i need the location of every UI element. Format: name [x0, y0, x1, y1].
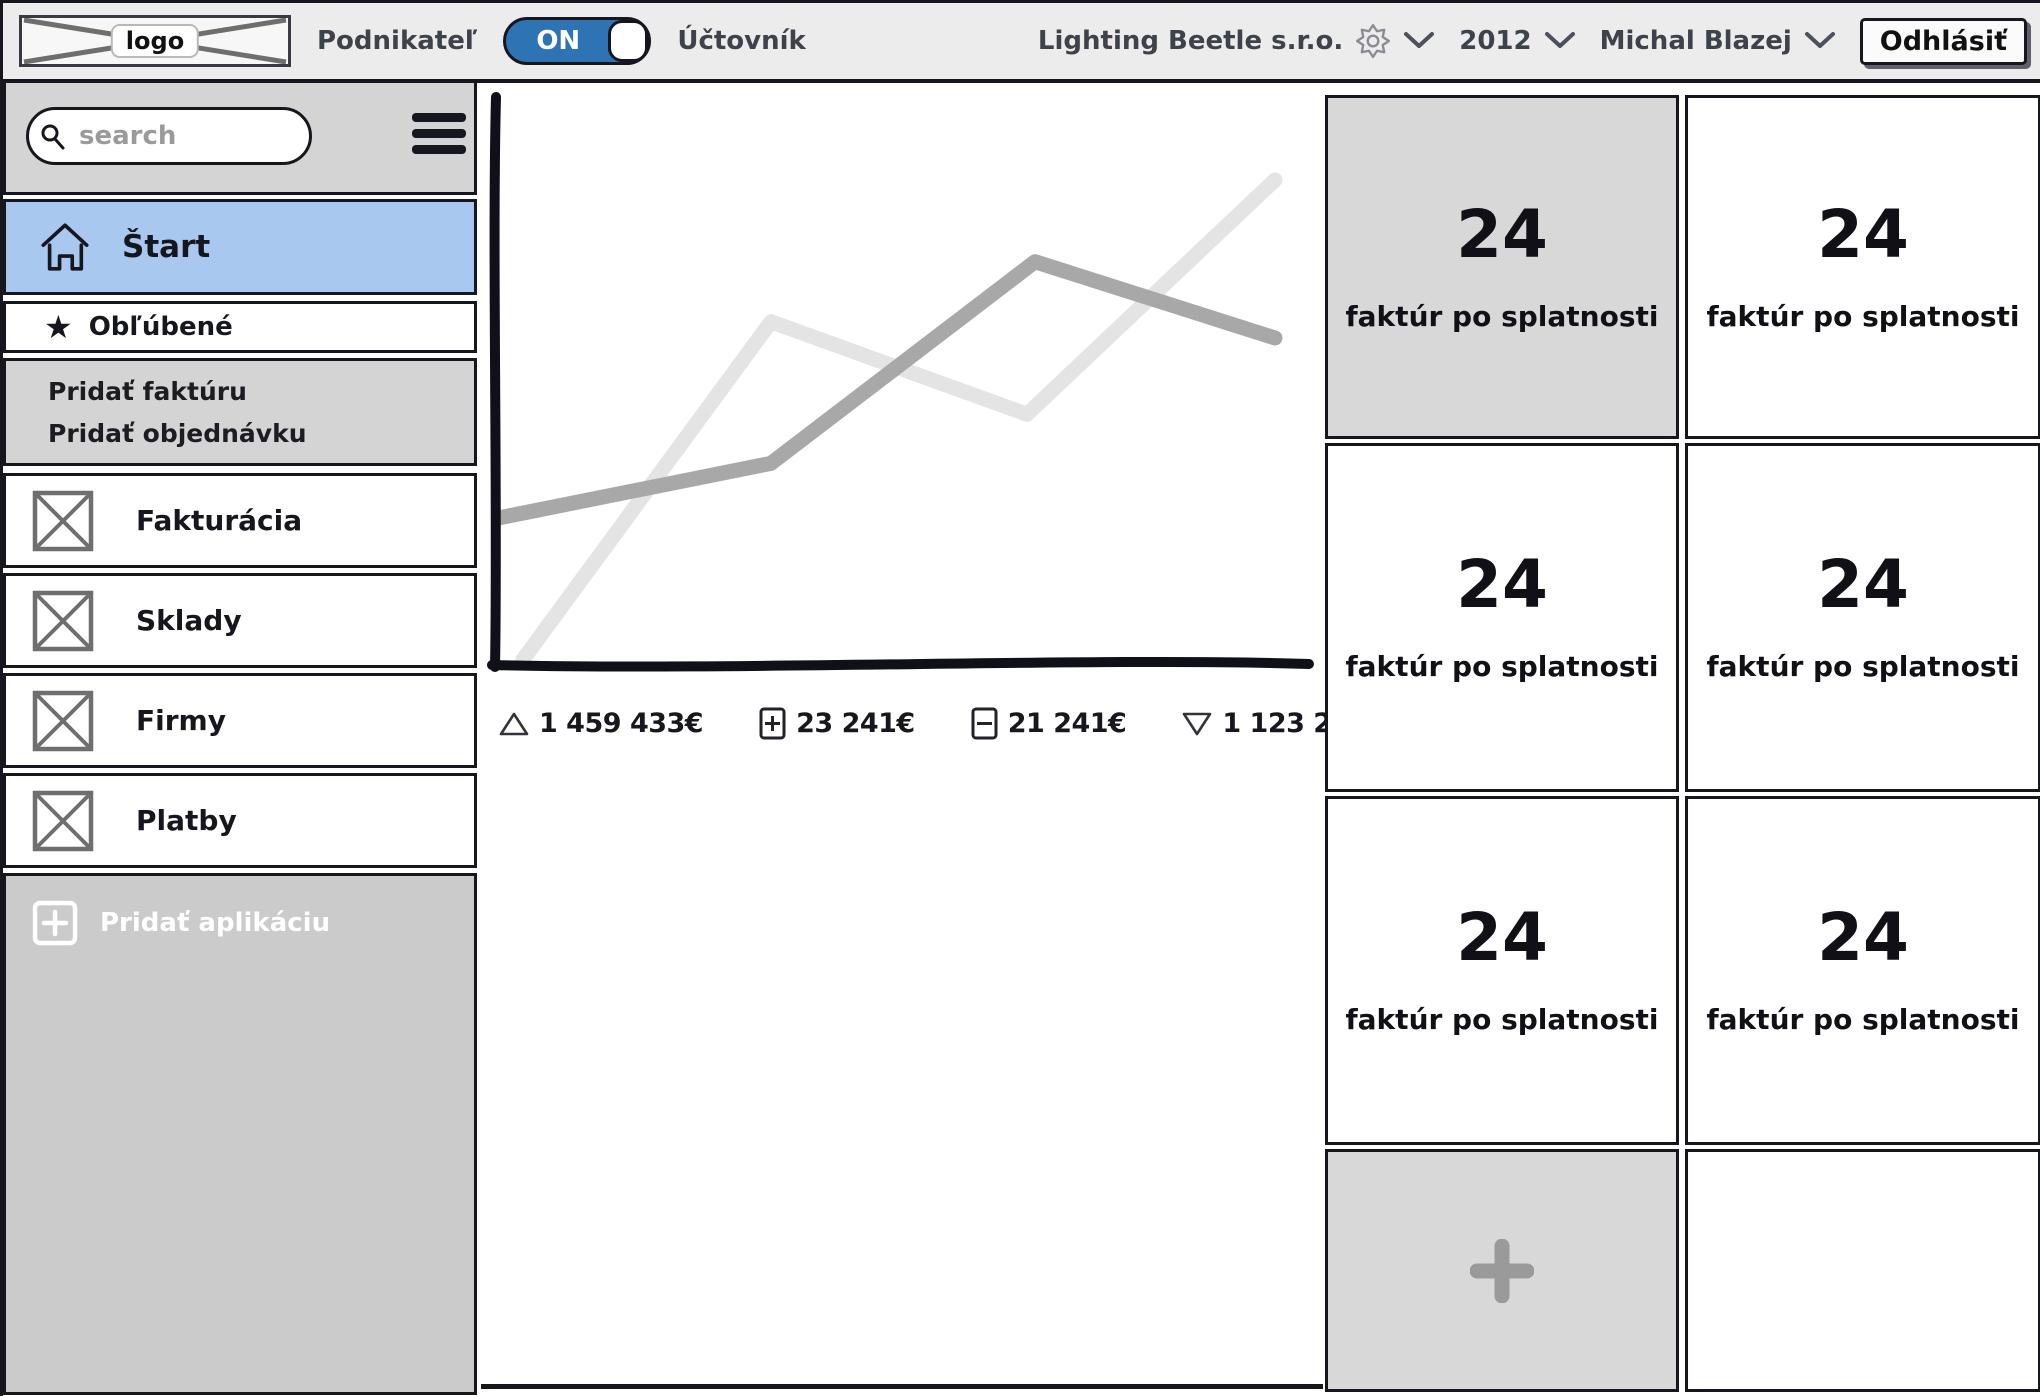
company-selector[interactable]: Lighting Beetle s.r.o.: [1038, 23, 1435, 59]
summary-card[interactable]: 24 faktúr po splatnosti: [1685, 796, 2040, 1145]
gear-icon[interactable]: [1355, 23, 1391, 59]
summary-card[interactable]: 24 faktúr po splatnosti: [1325, 796, 1679, 1145]
sidebar-item-label: Sklady: [136, 604, 242, 637]
sidebar-search-section: [3, 83, 477, 195]
hamburger-menu-icon[interactable]: [412, 113, 466, 161]
x-axis: [492, 662, 1309, 667]
legend-value: 23 241€: [796, 708, 915, 739]
image-placeholder-icon: [32, 790, 94, 852]
legend-item: 21 241€: [971, 707, 1127, 740]
summary-card[interactable]: 24 faktúr po splatnosti: [1325, 95, 1679, 439]
role-right-label: Účtovník: [677, 26, 805, 56]
star-icon: ★: [44, 311, 73, 343]
plus-box-icon: [759, 707, 786, 740]
triangle-down-icon: [1182, 711, 1212, 737]
image-placeholder-icon: [32, 690, 94, 752]
sidebar-item-invoicing[interactable]: Fakturácia: [3, 473, 477, 568]
chart-legend: 1 459 433€ 23 241€ 21 241€: [499, 707, 1386, 740]
card-label: faktúr po splatnosti: [1706, 1003, 2019, 1036]
topbar: logo Podnikateľ ON Účtovník Lighting Bee…: [3, 3, 2040, 83]
logo-text: logo: [111, 24, 199, 58]
user-selector[interactable]: Michal Blazej: [1600, 26, 1836, 56]
chart-panel: 1 459 433€ 23 241€ 21 241€: [481, 87, 1323, 1389]
card-label: faktúr po splatnosti: [1706, 650, 2019, 683]
sidebar-item-label: Obľúbené: [89, 312, 233, 342]
legend-value: 1 459 433€: [539, 708, 703, 739]
plus-box-icon: [32, 900, 78, 946]
topbar-right: Lighting Beetle s.r.o. 2012 Mich: [1038, 18, 2027, 65]
sidebar-item-companies[interactable]: Firmy: [3, 673, 477, 768]
legend-value: 21 241€: [1008, 708, 1127, 739]
sidebar-item-label: Platby: [136, 804, 237, 837]
sidebar: Štart ★ Obľúbené Pridať faktúru Pridať o…: [3, 83, 477, 1395]
card-value: 24: [1456, 552, 1548, 618]
card-label: faktúr po splatnosti: [1345, 300, 1658, 333]
role-left-label: Podnikateľ: [317, 26, 477, 56]
add-application-label: Pridať aplikáciu: [100, 908, 330, 938]
sidebar-item-payments[interactable]: Platby: [3, 773, 477, 868]
sidebar-item-label: Firmy: [136, 704, 226, 737]
add-card-plus-icon: [1470, 1239, 1534, 1303]
chevron-down-icon[interactable]: [1544, 31, 1576, 51]
sidebar-item-favorites[interactable]: ★ Obľúbené: [3, 301, 477, 353]
card-value: 24: [1456, 202, 1548, 268]
search-input[interactable]: [26, 107, 312, 165]
sidebar-item-label: Fakturácia: [136, 504, 302, 537]
toggle-on-label: ON: [536, 26, 580, 56]
role-toggle[interactable]: ON: [503, 17, 651, 65]
y-axis: [495, 97, 496, 667]
sidebar-item-warehouses[interactable]: Sklady: [3, 573, 477, 668]
logo-image-placeholder: logo: [19, 15, 291, 67]
line-chart: [483, 89, 1317, 689]
year-value: 2012: [1459, 26, 1531, 56]
triangle-up-icon: [499, 711, 529, 737]
card-label: faktúr po splatnosti: [1345, 650, 1658, 683]
legend-item: 1 459 433€: [499, 708, 703, 739]
logout-button[interactable]: Odhlásiť: [1860, 18, 2027, 65]
wireframe-dashboard: logo Podnikateľ ON Účtovník Lighting Bee…: [0, 0, 2040, 1396]
summary-card[interactable]: 24 faktúr po splatnosti: [1325, 443, 1679, 792]
quick-action-add-invoice[interactable]: Pridať faktúru: [48, 377, 247, 406]
card-value: 24: [1817, 905, 1909, 971]
company-name: Lighting Beetle s.r.o.: [1038, 26, 1343, 56]
user-name: Michal Blazej: [1600, 26, 1792, 56]
summary-card[interactable]: 24 faktúr po splatnosti: [1685, 443, 2040, 792]
summary-cards-grid: 24 faktúr po splatnosti 24 faktúr po spl…: [1325, 95, 2040, 1392]
sidebar-item-label: Štart: [122, 229, 210, 265]
summary-card[interactable]: 24 faktúr po splatnosti: [1685, 95, 2040, 439]
card-label: faktúr po splatnosti: [1345, 1003, 1658, 1036]
home-icon: [36, 218, 94, 276]
add-application-section: Pridať aplikáciu: [3, 873, 477, 1395]
add-application-button[interactable]: Pridať aplikáciu: [32, 900, 330, 946]
chevron-down-icon[interactable]: [1403, 31, 1435, 51]
card-value: 24: [1817, 552, 1909, 618]
toggle-knob[interactable]: [608, 20, 648, 62]
quick-actions-section: Pridať faktúru Pridať objednávku: [3, 358, 477, 466]
card-value: 24: [1817, 202, 1909, 268]
year-selector[interactable]: 2012: [1459, 26, 1575, 56]
image-placeholder-icon: [32, 490, 94, 552]
chevron-down-icon[interactable]: [1804, 31, 1836, 51]
empty-card-slot: [1685, 1149, 2040, 1392]
card-label: faktúr po splatnosti: [1706, 300, 2019, 333]
minus-box-icon: [971, 707, 998, 740]
quick-action-add-order[interactable]: Pridať objednávku: [48, 419, 307, 448]
legend-item: 23 241€: [759, 707, 915, 740]
sidebar-item-start[interactable]: Štart: [3, 199, 477, 295]
add-card-button[interactable]: [1325, 1149, 1679, 1392]
image-placeholder-icon: [32, 590, 94, 652]
card-value: 24: [1456, 905, 1548, 971]
